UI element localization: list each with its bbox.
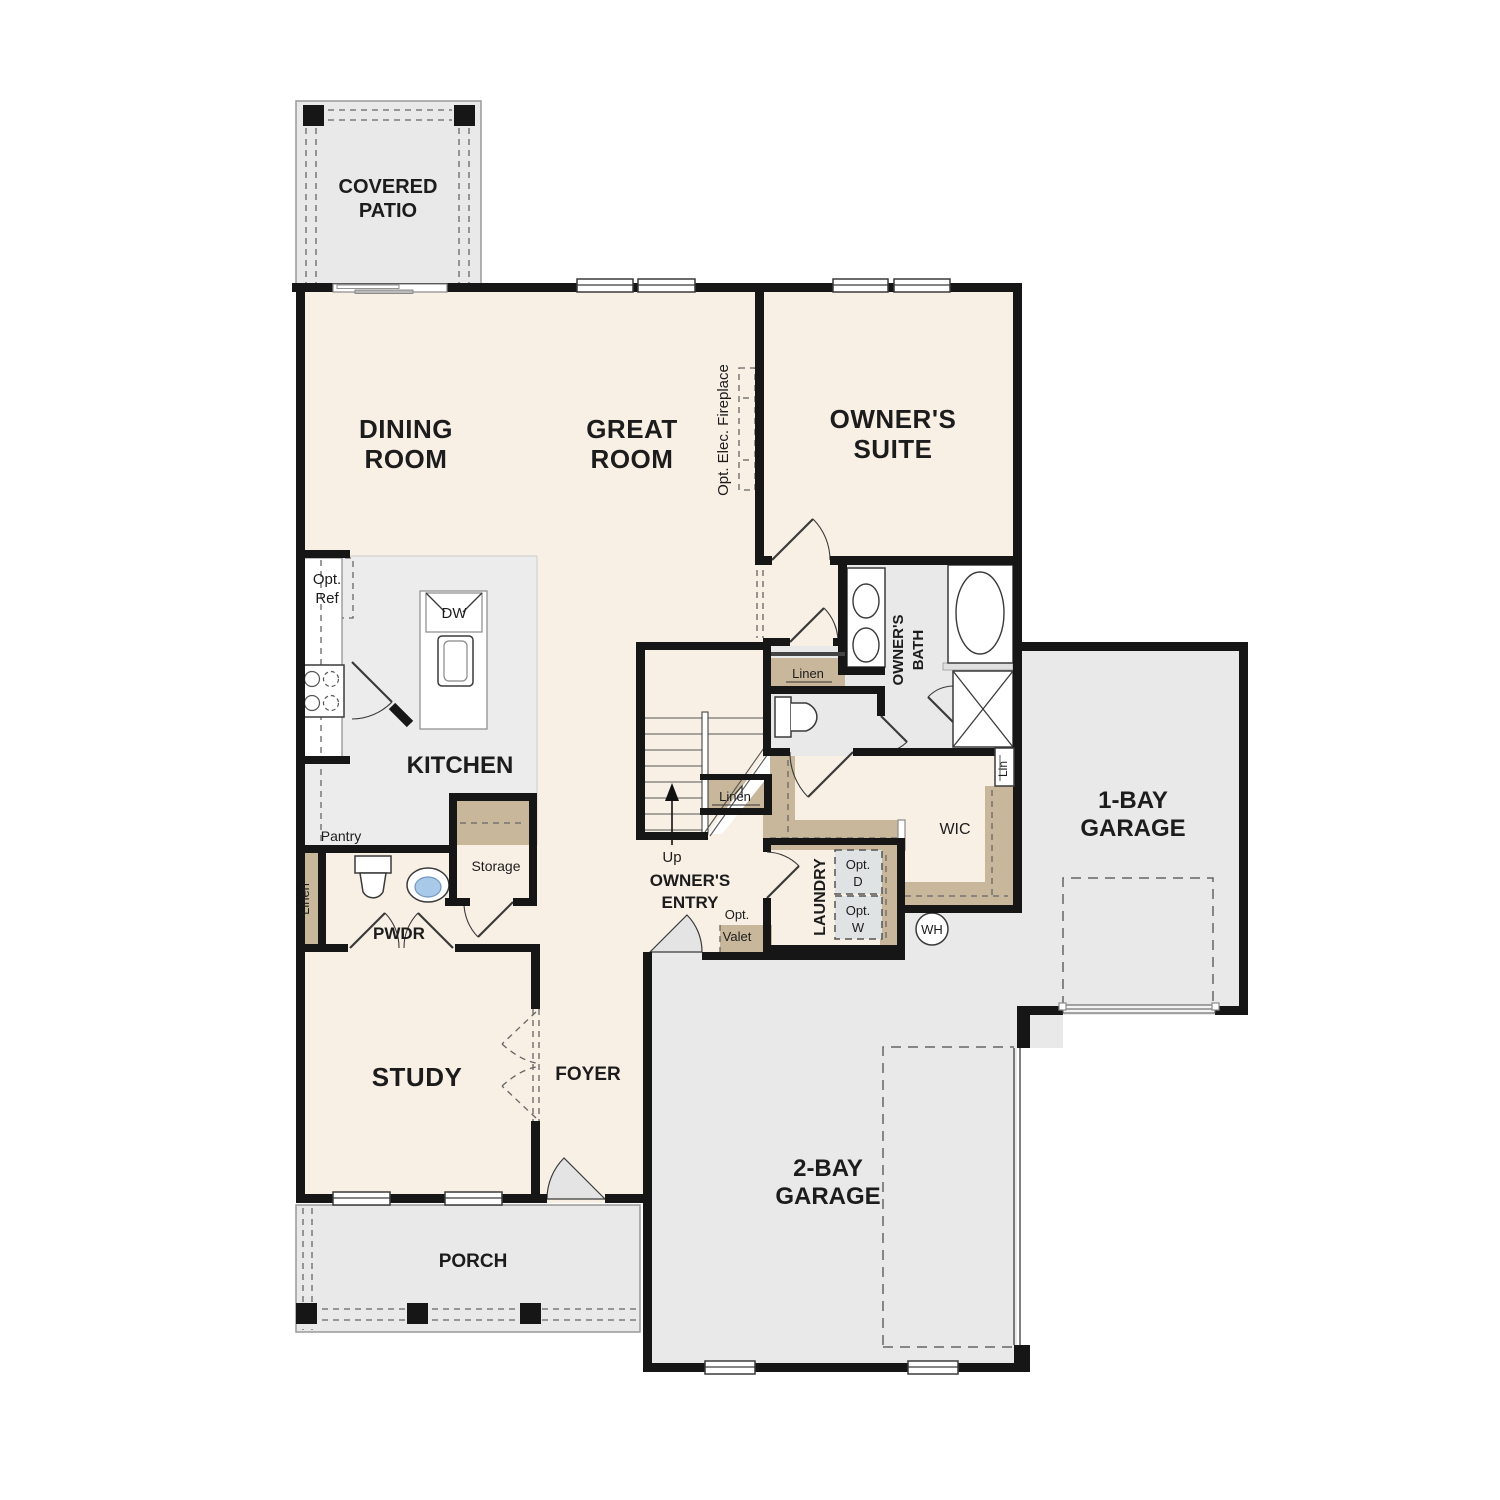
- foyer-label: FOYER: [555, 1064, 621, 1085]
- svg-text:Valet: Valet: [723, 929, 752, 944]
- owners-entry-label: OWNER'S: [650, 871, 731, 890]
- wh-label: WH: [921, 922, 943, 937]
- great-room-label: GREAT: [586, 414, 678, 444]
- svg-text:GARAGE: GARAGE: [775, 1183, 880, 1210]
- up-label: Up: [662, 849, 681, 866]
- floor-plan-drawing: COVERED PATIO DINING ROOM GREAT ROOM OWN…: [0, 0, 1500, 1500]
- svg-text:SUITE: SUITE: [853, 434, 932, 464]
- garage2-label: 2-BAY: [793, 1155, 863, 1182]
- storage-label: Storage: [471, 858, 520, 874]
- svg-text:W: W: [852, 920, 865, 935]
- svg-text:BATH: BATH: [910, 630, 927, 671]
- porch-post: [407, 1303, 428, 1324]
- porch-label: PORCH: [439, 1251, 508, 1272]
- pwdr-label: PWDR: [373, 924, 425, 943]
- linen-stairs-label: Linen: [719, 789, 751, 804]
- pwdr-toilet-icon: [355, 856, 391, 873]
- linen-pwdr-label: Linen: [297, 883, 312, 915]
- opt-ref-label: Opt.: [313, 571, 341, 588]
- wic-label: WIC: [939, 821, 970, 838]
- owners-suite-label: OWNER'S: [830, 404, 957, 434]
- lin-wic-label: Lin: [996, 761, 1010, 777]
- svg-text:ROOM: ROOM: [365, 444, 448, 474]
- bathtub-icon: [948, 565, 1013, 663]
- porch-post: [520, 1303, 541, 1324]
- linen-hall-label: Linen: [792, 666, 824, 681]
- patio-post: [454, 105, 475, 126]
- garage1-label: 1-BAY: [1098, 787, 1168, 814]
- opt-valet-label: Opt.: [725, 907, 750, 922]
- svg-text:PATIO: PATIO: [359, 200, 417, 222]
- study-label: STUDY: [372, 1062, 463, 1092]
- kitchen-sink-icon: [438, 636, 473, 686]
- floor-plan-page: COVERED PATIO DINING ROOM GREAT ROOM OWN…: [0, 0, 1500, 1500]
- svg-text:ROOM: ROOM: [591, 444, 674, 474]
- dishwasher-label: DW: [442, 605, 468, 622]
- svg-text:ENTRY: ENTRY: [662, 893, 720, 912]
- svg-text:D: D: [853, 874, 862, 889]
- dining-room-label: DINING: [359, 414, 453, 444]
- svg-text:GARAGE: GARAGE: [1080, 815, 1185, 842]
- porch-post: [296, 1303, 317, 1324]
- opt-washer-label: Opt.: [846, 903, 871, 918]
- pantry-label: Pantry: [321, 828, 361, 844]
- kitchen-label: KITCHEN: [407, 752, 514, 779]
- svg-text:Ref: Ref: [315, 590, 339, 607]
- laundry-label: LAUNDRY: [812, 858, 829, 936]
- opt-dryer-label: Opt.: [846, 857, 871, 872]
- patio-post: [303, 105, 324, 126]
- bath-toilet-icon: [775, 697, 791, 737]
- covered-patio-label: COVERED: [339, 176, 438, 198]
- opt-fireplace-label: Opt. Elec. Fireplace: [715, 364, 732, 496]
- owners-bath-label: OWNER'S: [890, 614, 907, 685]
